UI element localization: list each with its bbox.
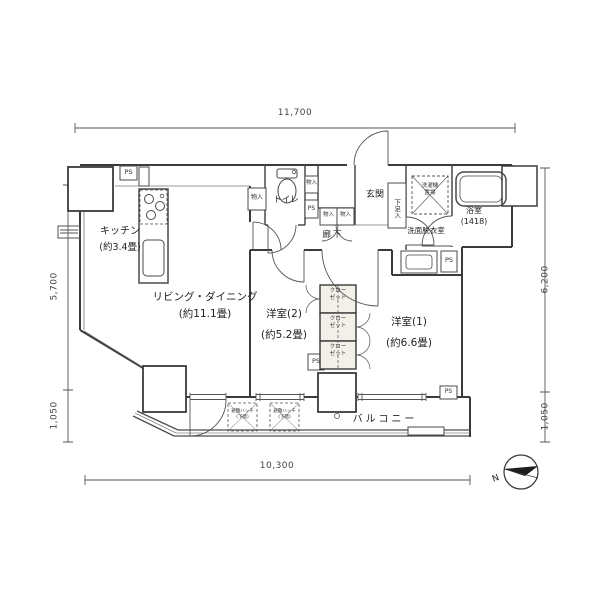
bathtub (456, 172, 506, 206)
floor-plan-drawing (0, 0, 600, 600)
storage-label-2: 物入 (248, 194, 266, 201)
ps-label-3: PS (441, 257, 457, 265)
room-label-bedroom1: 洋室(1) (約6.6畳) (366, 312, 452, 354)
washer-label: 洗濯機 置場 (412, 183, 448, 197)
dim-left-lower-label: 1,050 (50, 393, 61, 437)
floor-plan: 11,700 10,300 5,700 1,050 6,200 1,050 キッ… (0, 0, 600, 600)
ps-label-5: PS (440, 388, 457, 395)
hatch-label-2: 避難ハッチ (下階) (269, 409, 300, 421)
hatch-label-1: 避難ハッチ (下階) (227, 409, 258, 421)
dim-right-upper-label: 6,200 (541, 257, 552, 301)
room-label-bedroom2: 洋室(2) (約5.2畳) (246, 304, 322, 346)
shoe-box-label: 下足入 (392, 192, 400, 226)
ps-label-1: PS (120, 169, 137, 177)
closet-label-2: クロー ゼット (321, 316, 355, 330)
closet-label-3: クロー ゼット (321, 344, 355, 358)
storage-label-1: 物入 (304, 180, 319, 187)
storage-label-3: 物入 (320, 212, 337, 219)
dim-left-upper-label: 5,700 (50, 264, 61, 308)
room-label-bathroom: 浴室 (1418) (450, 205, 498, 227)
dim-top-label: 11,700 (265, 108, 325, 119)
compass-icon (504, 455, 538, 489)
closet-label-1: クロー ゼット (321, 288, 355, 302)
ps-label-2: PS (305, 205, 318, 212)
dim-bottom-label: 10,300 (245, 461, 309, 472)
dim-right-lower-label: 1,050 (541, 394, 552, 438)
storage-label-4: 物入 (337, 212, 354, 219)
room-label-entrance: 玄関 (355, 190, 395, 201)
room-label-washroom: 洗面脱衣室 (395, 226, 457, 235)
room-label-kitchen: キッチン (約3.4畳) (86, 224, 154, 256)
room-label-toilet: トイレ (266, 195, 306, 205)
ps-label-4: PS (308, 358, 324, 366)
room-label-balcony: バルコニー (342, 414, 428, 426)
room-label-hallway: 廊下 (313, 230, 353, 240)
washbasin (401, 251, 437, 273)
